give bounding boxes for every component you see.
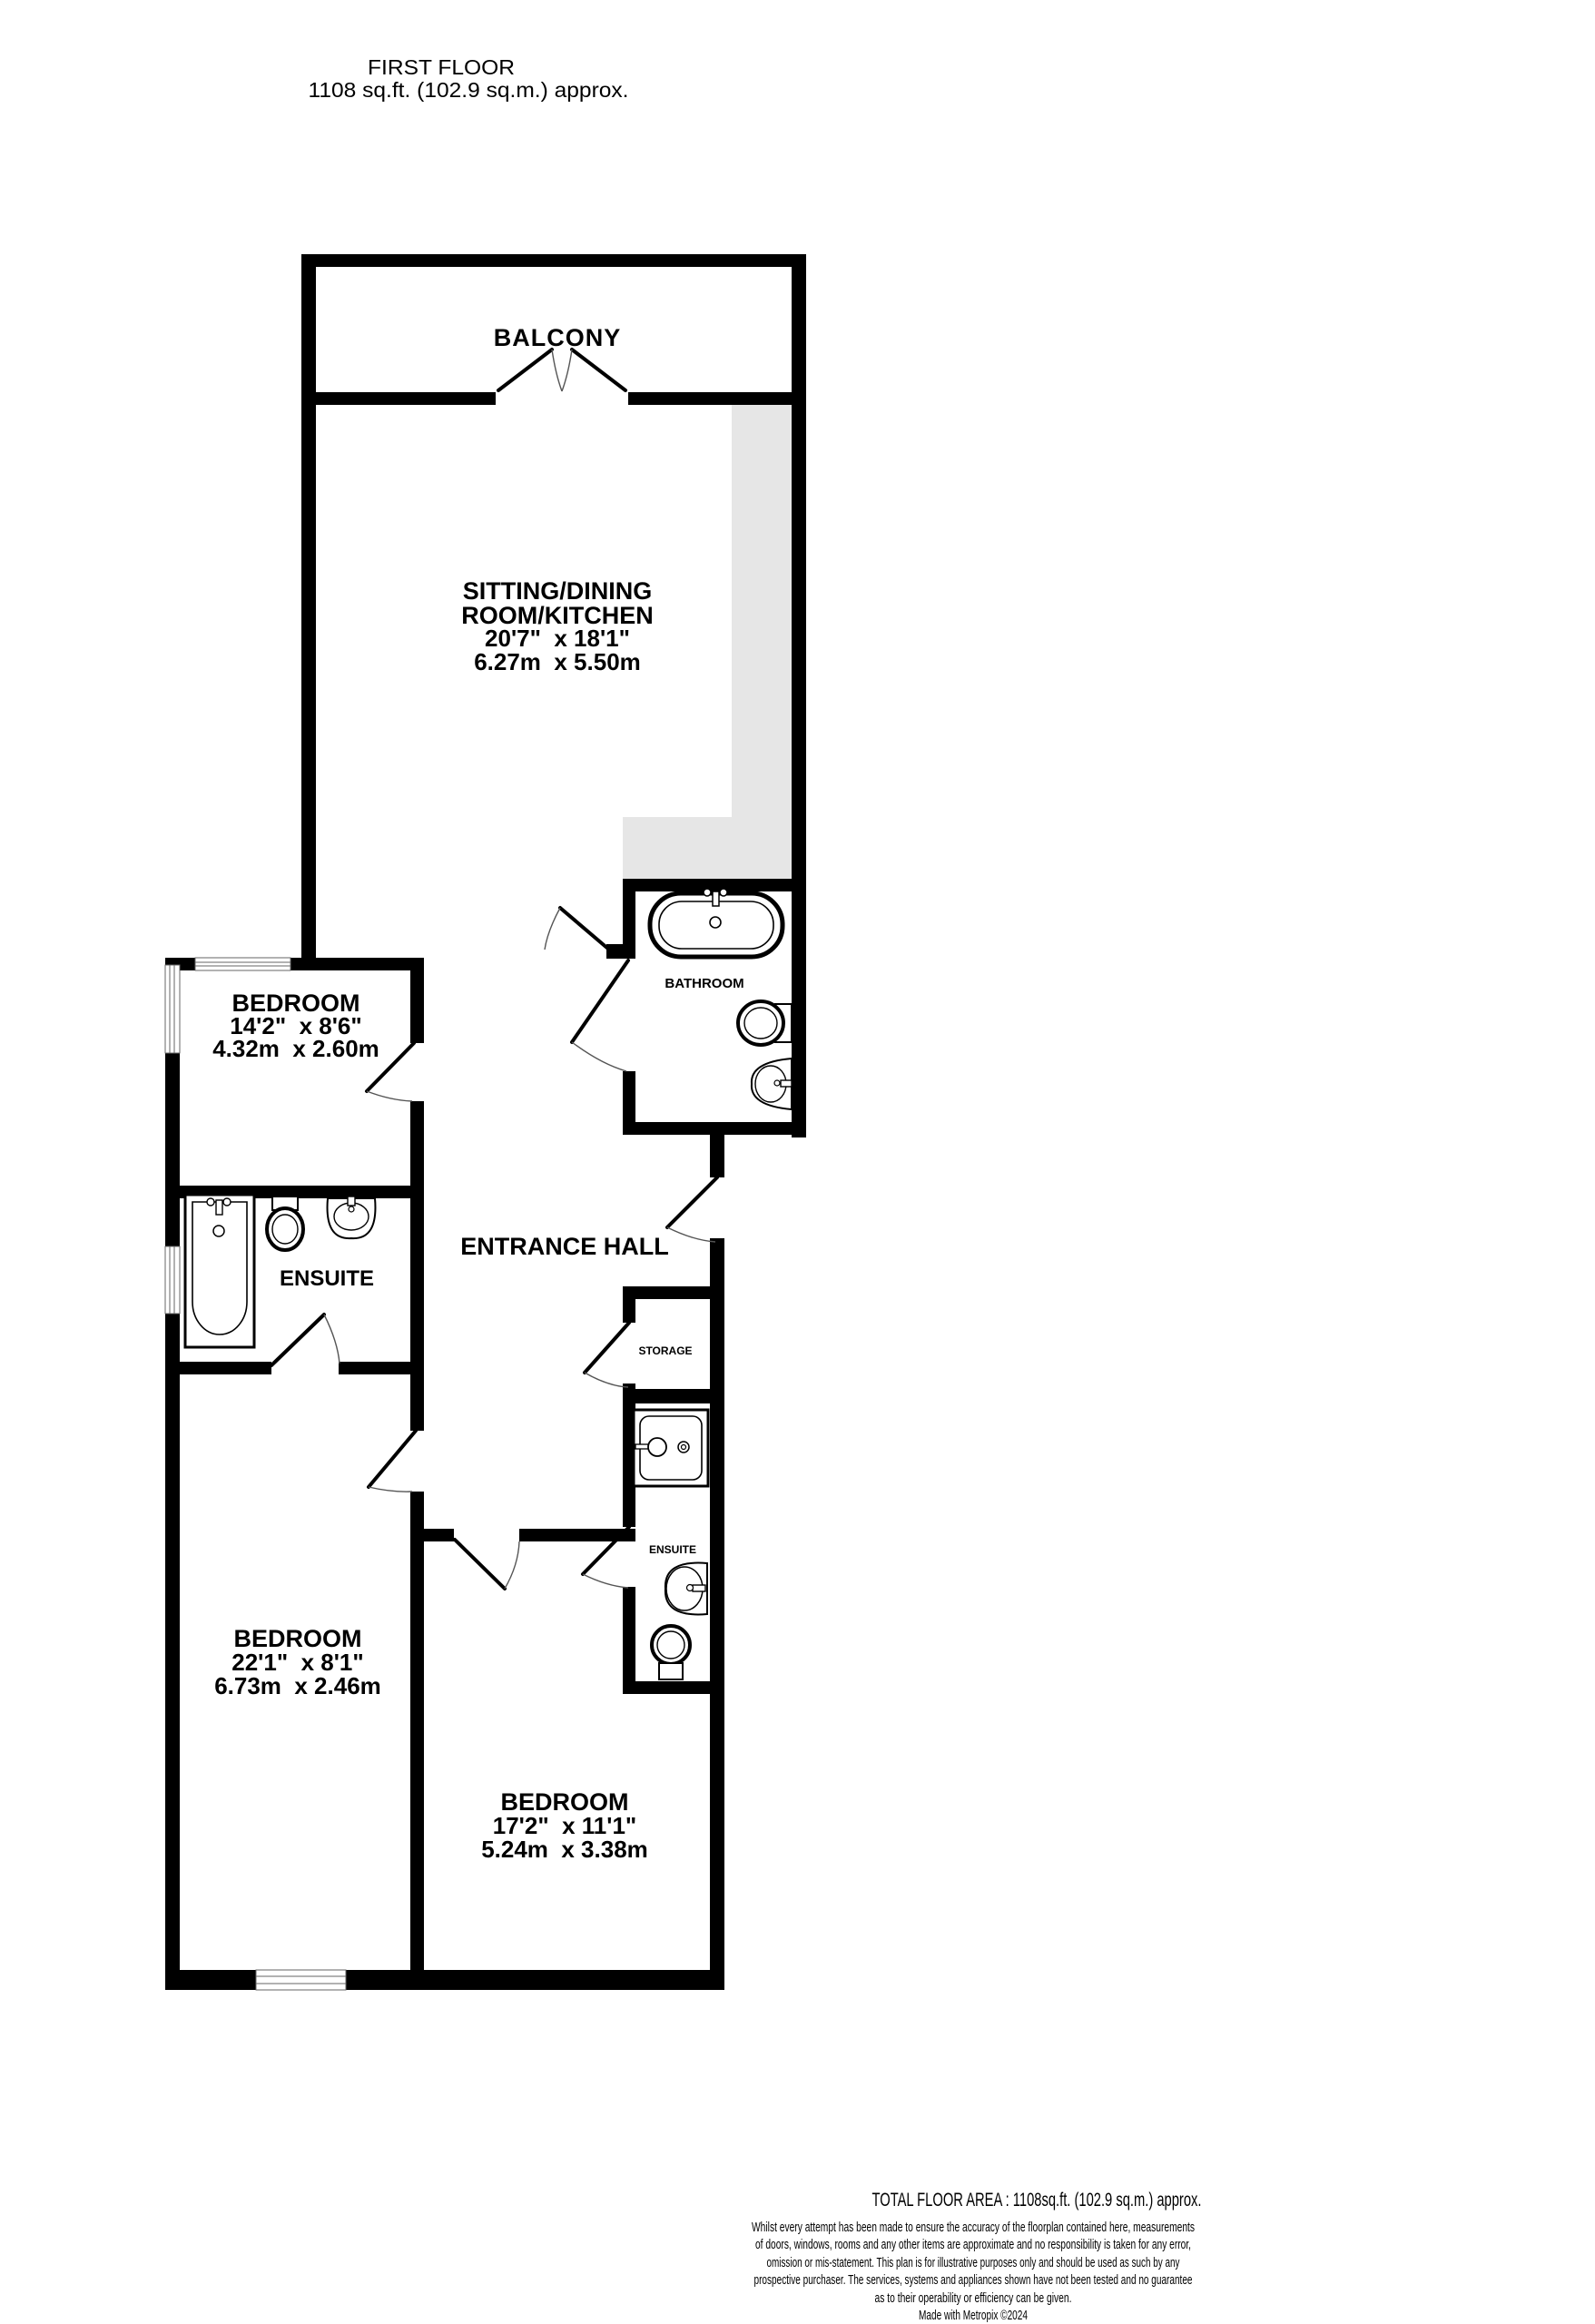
floor-title: FIRST FLOOR [368, 55, 515, 79]
kitchen-counter-area [623, 405, 792, 879]
floorplan-canvas: FIRST FLOOR 1108 sq.ft. (102.9 sq.m.) ap… [0, 0, 1595, 2324]
window-bedroom2-bottom [256, 1970, 346, 1990]
ensuite1-door [271, 1315, 340, 1365]
bedroom1-dims-metric: 4.32m x 2.60m [212, 1035, 379, 1062]
sitting-room-dims-metric: 6.27m x 5.50m [474, 648, 641, 675]
window-bedroom1-top [195, 958, 290, 970]
bedroom3-door [455, 1540, 519, 1589]
bedroom3-dims-metric: 5.24m x 3.38m [481, 1836, 648, 1863]
room-sitting-dining-kitchen: SITTING/DINING ROOM/KITCHEN 20'7" x 18'1… [461, 577, 654, 675]
bathroom-fixtures [650, 889, 792, 1109]
room-balcony: BALCONY [494, 324, 622, 351]
room-ensuite1: ENSUITE [280, 1266, 374, 1291]
disclaimer-line-3: omission or mis-statement. This plan is … [767, 2256, 1181, 2270]
window-bedroom1-left [165, 965, 180, 1053]
sink-icon [752, 1059, 792, 1109]
balcony-double-door [498, 350, 625, 391]
front-door [667, 1177, 717, 1242]
toilet-icon [652, 1626, 690, 1679]
toilet-icon [267, 1196, 303, 1250]
room-bedroom1: BEDROOM 14'2" x 8'6" 4.32m x 2.60m [212, 990, 379, 1062]
ensuite1-label: ENSUITE [280, 1266, 374, 1291]
ensuite2-label: ENSUITE [649, 1543, 696, 1556]
bedroom2-door [369, 1431, 416, 1492]
disclaimer-line-5: as to their operability or efficiency ca… [875, 2291, 1072, 2306]
windows [165, 958, 346, 1990]
shower-icon [634, 1410, 708, 1486]
bathroom-door [572, 960, 628, 1071]
room-bathroom: BATHROOM [665, 976, 743, 991]
disclaimer-line-4: prospective purchaser. The services, sys… [754, 2273, 1193, 2288]
toilet-icon [738, 1001, 792, 1045]
bathroom-label: BATHROOM [665, 976, 743, 991]
floor-area-subtitle: 1108 sq.ft. (102.9 sq.m.) approx. [309, 78, 629, 102]
room-bedroom3: BEDROOM 17'2" x 11'1" 5.24m x 3.38m [481, 1788, 648, 1863]
storage-label: STORAGE [638, 1344, 692, 1357]
entrance-hall-label: ENTRANCE HALL [460, 1233, 669, 1260]
room-entrance-hall: ENTRANCE HALL [460, 1233, 669, 1260]
disclaimer-line-1: Whilst every attempt has been made to en… [752, 2221, 1195, 2235]
sink-icon [328, 1196, 376, 1238]
made-with-credit: Made with Metropix ©2024 [919, 2309, 1028, 2323]
balcony-label: BALCONY [494, 324, 622, 351]
window-ensuite1-left [165, 1246, 180, 1314]
floorplan-header: FIRST FLOOR 1108 sq.ft. (102.9 sq.m.) ap… [309, 55, 629, 102]
sitting-room-door [545, 908, 609, 950]
walls [165, 254, 806, 1990]
storage-door [585, 1323, 629, 1387]
room-ensuite2: ENSUITE [649, 1543, 696, 1556]
sitting-room-label-line1: SITTING/DINING [463, 577, 653, 605]
floorplan-footer: TOTAL FLOOR AREA : 1108sq.ft. (102.9 sq.… [752, 2190, 1202, 2323]
room-bedroom2: BEDROOM 22'1" x 8'1" 6.73m x 2.46m [214, 1625, 381, 1699]
total-floor-area: TOTAL FLOOR AREA : 1108sq.ft. (102.9 sq.… [872, 2190, 1202, 2211]
bathtub-icon [650, 889, 783, 957]
bathtub-icon [185, 1195, 254, 1347]
sink-icon [665, 1563, 707, 1615]
room-storage: STORAGE [638, 1344, 692, 1357]
bedroom2-dims-metric: 6.73m x 2.46m [214, 1672, 381, 1699]
disclaimer-line-2: of doors, windows, rooms and any other i… [755, 2238, 1191, 2252]
